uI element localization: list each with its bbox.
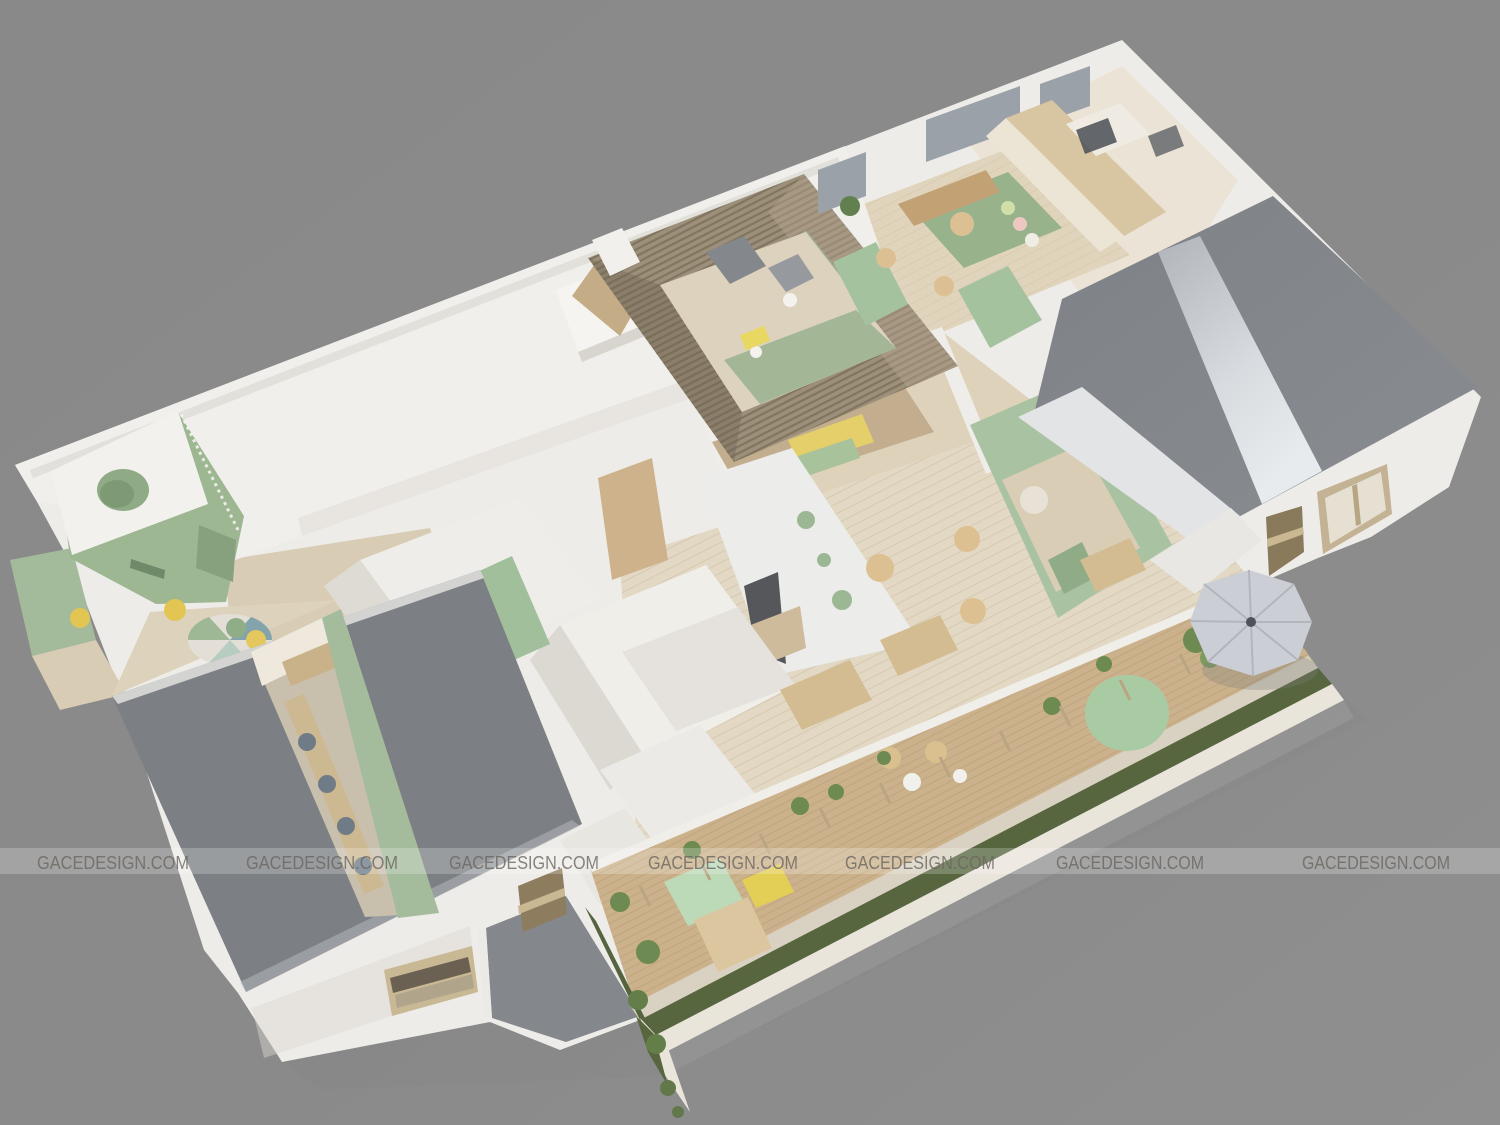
svg-text:GACEDESIGN.COM: GACEDESIGN.COM — [37, 853, 189, 873]
svg-text:GACEDESIGN.COM: GACEDESIGN.COM — [449, 853, 599, 873]
svg-text:GACEDESIGN.COM: GACEDESIGN.COM — [845, 853, 995, 873]
svg-text:GACEDESIGN.COM: GACEDESIGN.COM — [1056, 853, 1204, 873]
svg-text:GACEDESIGN.COM: GACEDESIGN.COM — [1302, 853, 1450, 873]
svg-text:GACEDESIGN.COM: GACEDESIGN.COM — [246, 853, 398, 873]
svg-text:GACEDESIGN.COM: GACEDESIGN.COM — [648, 853, 798, 873]
